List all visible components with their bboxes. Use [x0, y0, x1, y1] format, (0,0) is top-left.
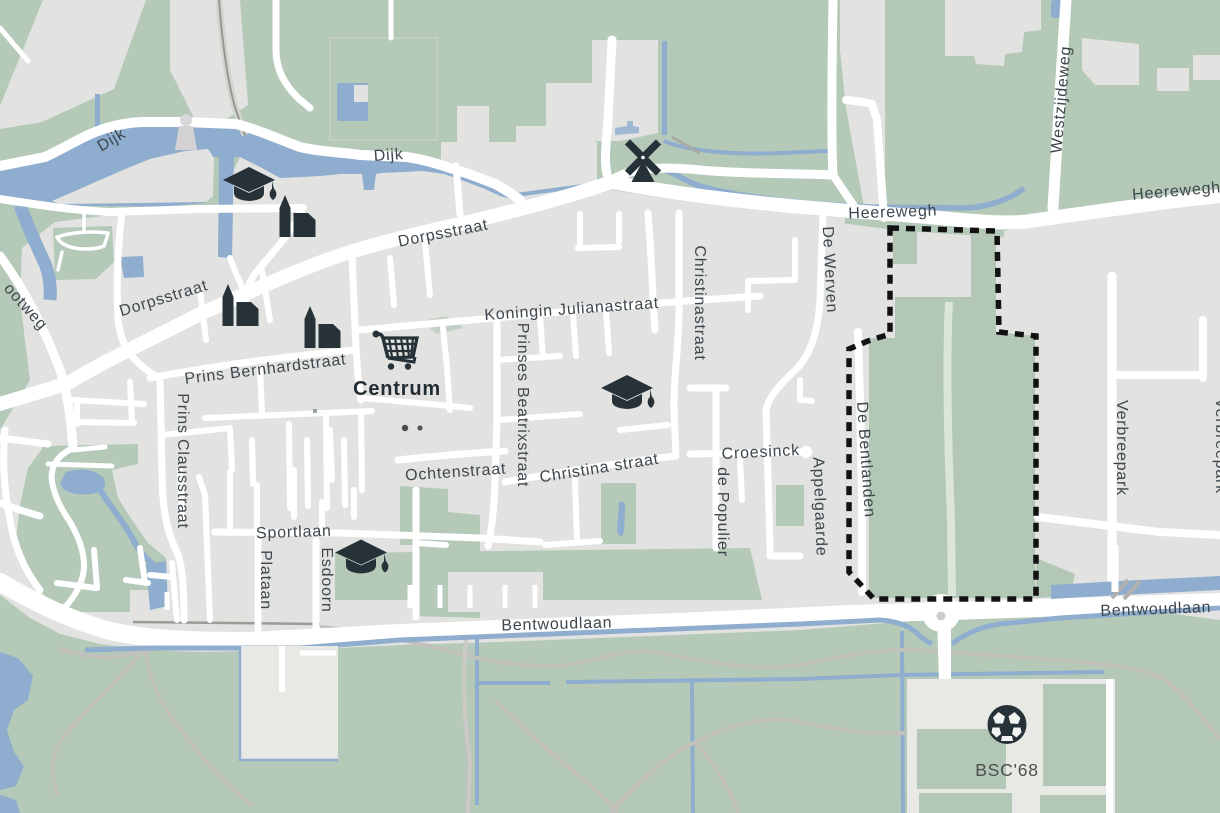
- svg-text:Bentwoudlaan: Bentwoudlaan: [501, 615, 612, 635]
- svg-text:Prinses Beatrixstraat: Prinses Beatrixstraat: [514, 323, 531, 487]
- svg-text:Dijk: Dijk: [373, 146, 404, 165]
- svg-text:de Populier: de Populier: [714, 467, 731, 557]
- svg-text:Appelgaarde: Appelgaarde: [809, 457, 829, 557]
- svg-text:Esdoorn: Esdoorn: [318, 547, 335, 612]
- svg-text:Heerewegh: Heerewegh: [848, 202, 938, 222]
- svg-text:Sportlaan: Sportlaan: [256, 523, 332, 543]
- svg-text:Plataan: Plataan: [257, 550, 274, 610]
- svg-text:Prins Clausstraat: Prins Clausstraat: [174, 393, 191, 528]
- svg-text:BSC'68: BSC'68: [975, 760, 1039, 780]
- svg-text:Centrum: Centrum: [353, 378, 441, 400]
- svg-text:Verbreepark: Verbreepark: [1113, 400, 1130, 496]
- svg-text:Christinastraat: Christinastraat: [691, 245, 708, 360]
- svg-text:Verbreepark: Verbreepark: [1212, 398, 1220, 494]
